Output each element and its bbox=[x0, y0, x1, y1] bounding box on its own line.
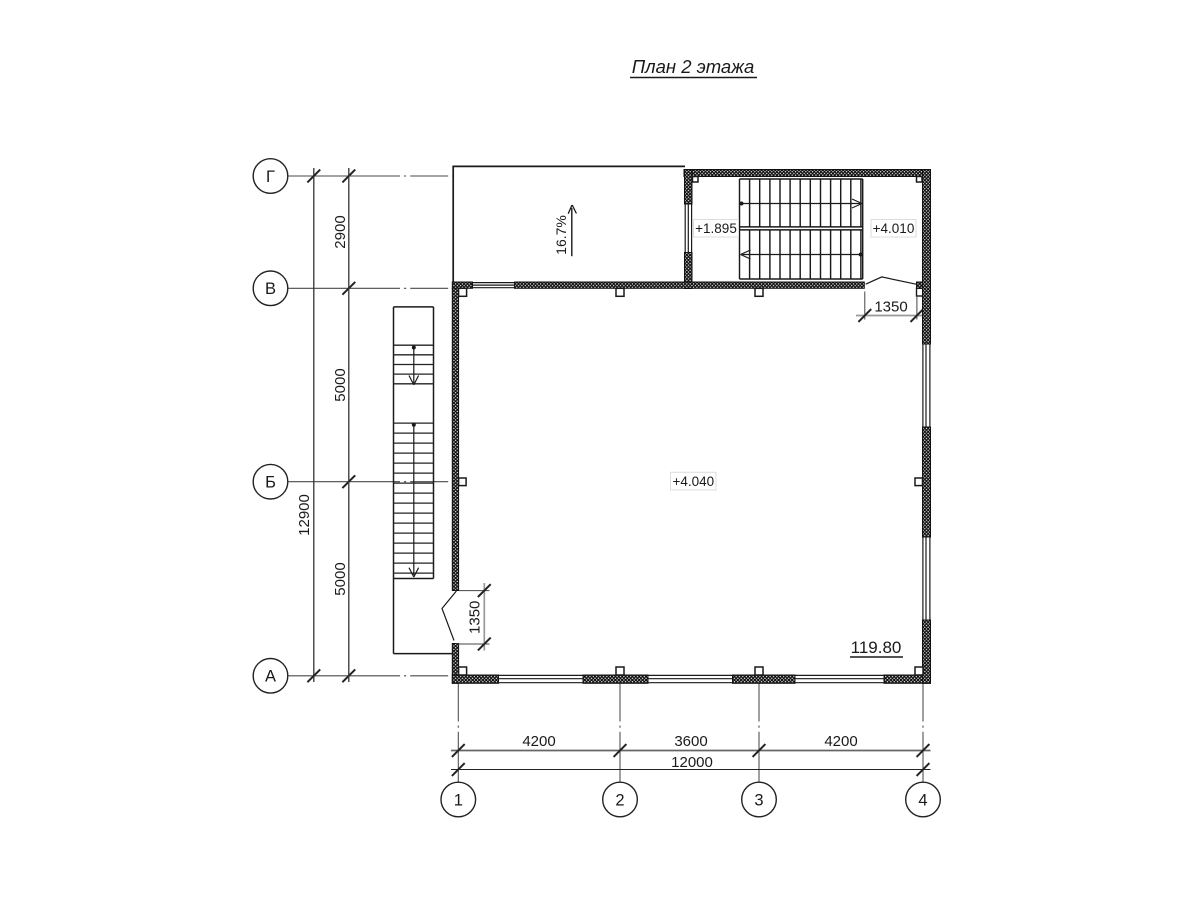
svg-text:3: 3 bbox=[754, 791, 763, 809]
svg-text:+4.040: +4.040 bbox=[672, 474, 714, 489]
svg-text:1350: 1350 bbox=[467, 601, 484, 634]
svg-text:1: 1 bbox=[454, 791, 463, 809]
svg-text:4200: 4200 bbox=[824, 733, 857, 750]
svg-text:119.80: 119.80 bbox=[851, 638, 902, 657]
svg-text:В: В bbox=[265, 280, 276, 298]
svg-text:12900: 12900 bbox=[296, 494, 313, 536]
svg-text:16.7%: 16.7% bbox=[553, 215, 569, 255]
svg-text:5000: 5000 bbox=[332, 368, 349, 401]
svg-text:+1.895: +1.895 bbox=[695, 221, 737, 236]
svg-text:+4.010: +4.010 bbox=[873, 221, 915, 236]
svg-text:2: 2 bbox=[615, 791, 624, 809]
svg-text:Г: Г bbox=[266, 168, 275, 186]
svg-text:План 2 этажа: План 2 этажа bbox=[632, 56, 754, 77]
svg-text:3600: 3600 bbox=[674, 733, 707, 750]
svg-text:12000: 12000 bbox=[671, 754, 713, 771]
svg-text:1350: 1350 bbox=[874, 299, 907, 316]
svg-text:5000: 5000 bbox=[332, 562, 349, 595]
svg-text:4: 4 bbox=[918, 791, 927, 809]
svg-text:2900: 2900 bbox=[332, 215, 349, 248]
svg-text:Б: Б bbox=[265, 474, 276, 492]
svg-text:А: А bbox=[265, 668, 276, 686]
svg-text:4200: 4200 bbox=[522, 733, 555, 750]
